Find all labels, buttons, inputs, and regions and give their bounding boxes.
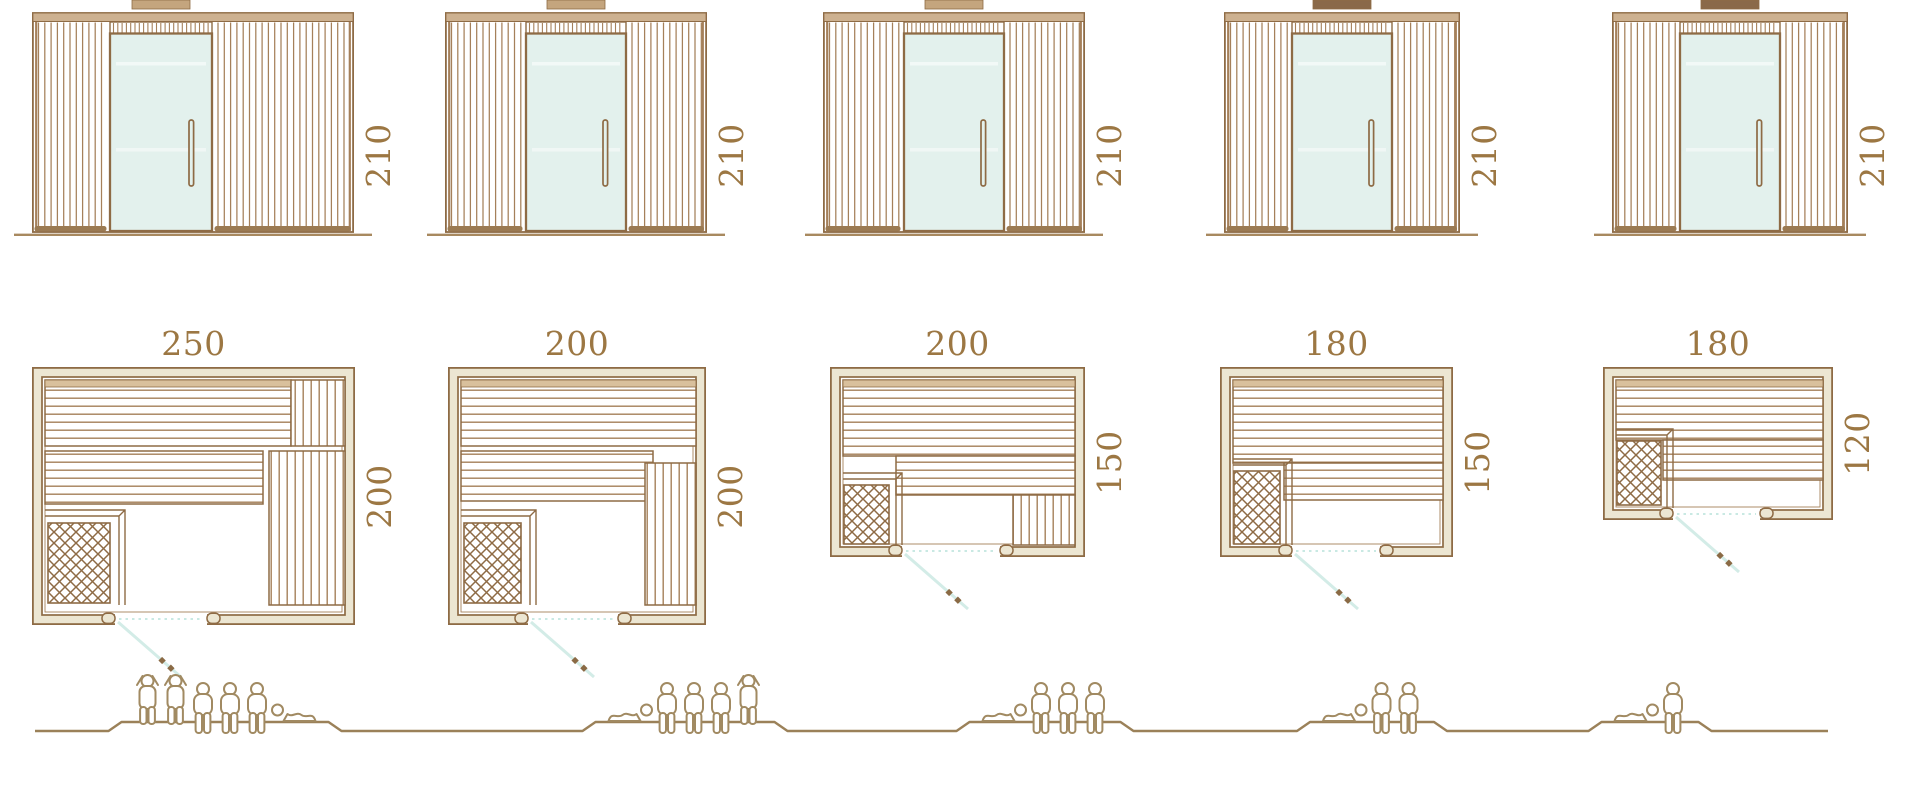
bench (1013, 495, 1075, 545)
bench (1616, 380, 1823, 440)
capacity-figures-unit-1 (137, 675, 316, 733)
floor-plan (32, 367, 355, 695)
plan-depth-text: 150 (1090, 430, 1129, 495)
base-board (35, 226, 107, 232)
figure-sitting (1059, 683, 1077, 733)
roof-vent (1701, 0, 1759, 9)
figure-sitting (712, 683, 730, 733)
figure-lying (1323, 705, 1367, 722)
base-board (1227, 226, 1289, 232)
heater (48, 523, 110, 603)
figure-lying (983, 705, 1027, 722)
door-jamb (1000, 545, 1013, 555)
bench-backrest (1233, 380, 1443, 387)
heater (844, 485, 889, 544)
elevation-height-text: 210 (1853, 123, 1892, 188)
top-band (1613, 13, 1847, 22)
heater (1234, 471, 1280, 544)
figure-sitting (1032, 683, 1050, 733)
floor-plan-svg (830, 367, 1085, 627)
floor-plan (830, 367, 1085, 627)
door-jamb (1760, 508, 1773, 518)
floor-plan (1220, 367, 1453, 627)
elevation-view (1612, 0, 1848, 240)
door-jamb (618, 613, 631, 623)
figure-sitting (1086, 683, 1104, 733)
plan-width-label: 200 (830, 327, 1085, 361)
elevation-height-label: 210 (1462, 110, 1506, 200)
elevation-view (445, 0, 707, 240)
elevation-svg (823, 0, 1085, 240)
door-handle (1369, 120, 1374, 186)
plan-depth-text: 200 (711, 464, 750, 529)
door-jamb (1279, 545, 1292, 555)
base-board (215, 226, 352, 232)
figure-sitting (221, 683, 239, 733)
bench (843, 380, 1075, 456)
floor-plan-svg (32, 367, 355, 695)
elevation-height-text: 210 (1465, 123, 1504, 188)
capacity-figures-unit-4 (1323, 683, 1418, 733)
figure-lying (272, 705, 316, 722)
plan-width-label: 180 (1603, 327, 1833, 361)
door-jamb (889, 545, 902, 555)
figure-lying (1615, 705, 1659, 722)
top-band (1225, 13, 1459, 22)
elevation-svg (445, 0, 707, 240)
heater (464, 523, 521, 603)
door-jamb (1660, 508, 1673, 518)
glass-highlight (532, 62, 620, 66)
elevation-view (32, 0, 354, 240)
bench (1663, 440, 1823, 480)
top-band (446, 13, 706, 22)
figure-sitting (248, 683, 266, 733)
base-board (448, 226, 523, 232)
elevation-height-text: 210 (712, 123, 751, 188)
bench-backrest (843, 380, 1075, 387)
glass-highlight (910, 62, 998, 66)
plan-depth-label: 120 (1835, 399, 1879, 489)
base-board (1615, 226, 1677, 232)
elevation-svg (1224, 0, 1460, 240)
door-handle (603, 120, 608, 186)
base-board (1395, 226, 1458, 232)
roof-vent (547, 0, 605, 9)
elevation-height-label: 210 (1850, 110, 1894, 200)
plan-depth-label: 150 (1455, 417, 1499, 507)
base-board (826, 226, 901, 232)
plan-depth-text: 120 (1838, 411, 1877, 476)
bench (45, 380, 291, 446)
plan-width-label: 180 (1220, 327, 1453, 361)
figure-standing (738, 675, 759, 724)
bench (645, 463, 696, 605)
capacity-svg (0, 670, 1920, 780)
elevation-view (1224, 0, 1460, 240)
top-band (33, 13, 353, 22)
glass-highlight (116, 62, 206, 66)
capacity-row (0, 670, 1920, 780)
figure-standing (165, 675, 186, 724)
plan-width-label: 200 (448, 327, 706, 361)
glass-highlight (1298, 62, 1386, 66)
bench (291, 380, 345, 446)
floor-plan (1603, 367, 1833, 590)
capacity-figures-unit-5 (1615, 683, 1683, 733)
plan-depth-text: 200 (360, 464, 399, 529)
roof-vent (1313, 0, 1371, 9)
elevation-height-text: 210 (359, 123, 398, 188)
capacity-figures-unit-2 (609, 675, 760, 733)
elevation-height-label: 210 (1087, 110, 1131, 200)
figure-sitting (1400, 683, 1418, 733)
base-board (629, 226, 705, 232)
elevation-svg (32, 0, 354, 240)
capacity-platform-line (35, 722, 1828, 731)
elevation-height-label: 210 (709, 110, 753, 200)
capacity-figures-unit-3 (983, 683, 1105, 733)
bench (461, 380, 696, 446)
elevation-svg (1612, 0, 1848, 240)
elevation-height-label: 210 (356, 110, 400, 200)
glass-highlight (1686, 62, 1774, 66)
figure-sitting (658, 683, 676, 733)
roof-vent (925, 0, 983, 9)
door-jamb (515, 613, 528, 623)
door-handle (1757, 120, 1762, 186)
bench (269, 451, 345, 605)
plan-depth-label: 150 (1087, 417, 1131, 507)
bench-backrest (45, 380, 291, 387)
figure-sitting (1664, 683, 1682, 733)
bench-backrest (461, 380, 696, 387)
figure-lying (609, 705, 653, 722)
floor-plan-svg (448, 367, 706, 695)
door-jamb (207, 613, 220, 623)
door-handle (189, 120, 194, 186)
bench (1233, 380, 1443, 463)
door-handle (981, 120, 986, 186)
bench-backrest (1616, 380, 1823, 387)
figure-standing (137, 675, 158, 724)
figure-sitting (194, 683, 212, 733)
bench (1284, 463, 1443, 500)
door-jamb (1380, 545, 1393, 555)
figure-sitting (1373, 683, 1391, 733)
roof-vent (132, 0, 190, 9)
floor-plan-svg (1603, 367, 1833, 590)
plan-width-label: 250 (32, 327, 355, 361)
plan-depth-label: 200 (357, 451, 401, 541)
elevation-height-text: 210 (1090, 123, 1129, 188)
floor-plan (448, 367, 706, 695)
heater (1617, 441, 1661, 505)
door-opening (115, 613, 207, 626)
plan-depth-label: 200 (708, 451, 752, 541)
plan-depth-text: 150 (1458, 430, 1497, 495)
bench (896, 456, 1075, 495)
bench (461, 451, 653, 501)
base-board (1783, 226, 1846, 232)
elevation-view (823, 0, 1085, 240)
door-jamb (102, 613, 115, 623)
floor-plan-svg (1220, 367, 1453, 627)
top-band (824, 13, 1084, 22)
base-board (1007, 226, 1083, 232)
figure-sitting (685, 683, 703, 733)
bench (45, 451, 263, 504)
